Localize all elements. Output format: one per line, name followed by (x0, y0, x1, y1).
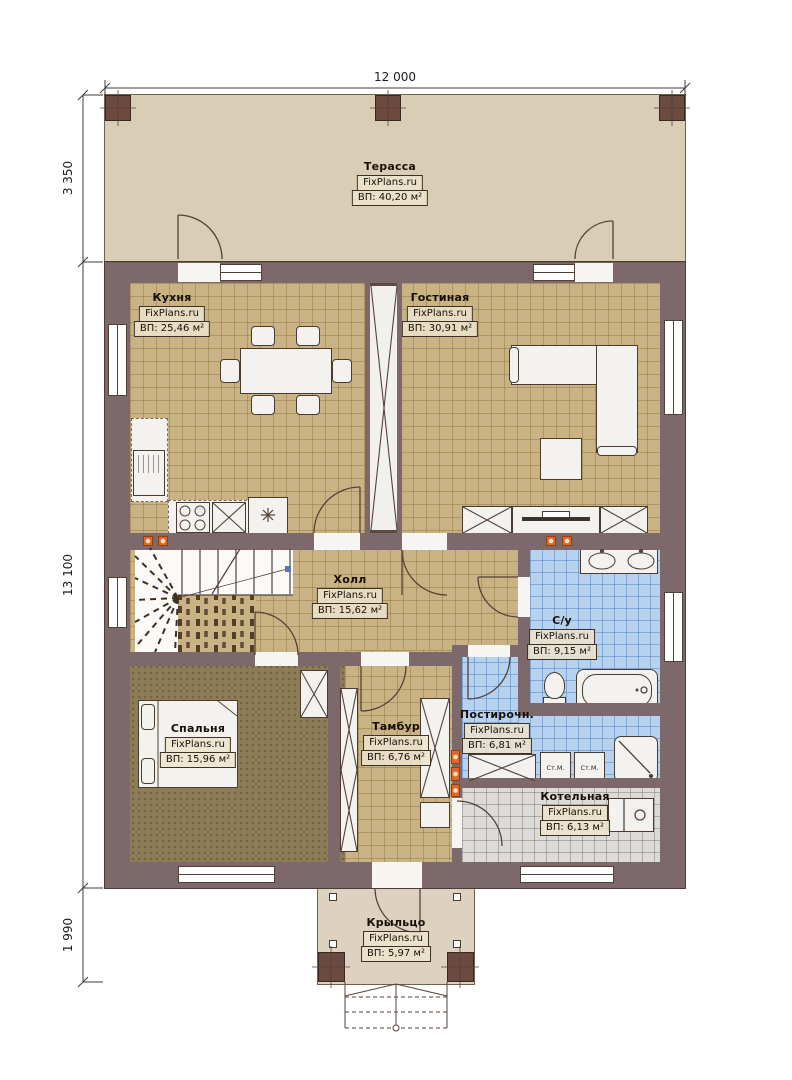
front-door-opening (372, 862, 422, 888)
brand-box: FixPlans.ru (542, 805, 608, 821)
boiler-door-opening (452, 798, 462, 848)
brand-box: FixPlans.ru (317, 588, 383, 604)
area-box: ВП: 6,76 м² (361, 750, 431, 766)
room-title: Крыльцо (367, 916, 426, 929)
dimension-house-depth: 13 100 (61, 554, 75, 596)
area-box: ВП: 25,46 м² (134, 321, 210, 337)
wall-vestibule-top (409, 652, 452, 666)
washer-label: Ст.М. (540, 764, 571, 772)
room-label-porch: Крыльцо FixPlans.ru ВП: 5,97 м² (361, 916, 431, 962)
dining-table (240, 348, 332, 394)
boiler-window (520, 866, 614, 883)
kitchen-island-unit (248, 497, 288, 534)
tv-cabinet-right (600, 506, 648, 534)
terrace-door-opening-right (575, 263, 613, 282)
wall-boiler-top (452, 778, 666, 788)
area-box: ВП: 15,62 м² (312, 603, 388, 619)
stair-direction-marker (285, 566, 291, 572)
pillow (141, 704, 155, 730)
bedroom-wardrobe (300, 670, 328, 718)
dining-chair (251, 395, 275, 415)
area-box: ВП: 15,96 м² (160, 752, 236, 768)
terrace-column (375, 95, 401, 121)
wall-bedroom-top (298, 652, 345, 666)
wall-mid (130, 533, 660, 550)
brand-box: FixPlans.ru (363, 931, 429, 947)
vent-marker (562, 536, 572, 546)
porch-post (329, 893, 337, 901)
washer-label: Ст.М. (574, 764, 605, 772)
staircase-winder (135, 548, 178, 652)
porch-steps (345, 997, 447, 1028)
bathroom-window (664, 592, 683, 662)
kitchen-window (108, 324, 127, 396)
room-label-hall: Холл FixPlans.ru ВП: 15,62 м² (312, 573, 388, 619)
porch-post (453, 893, 461, 901)
vestibule-shelf (420, 802, 450, 828)
room-label-bedroom: Спальня FixPlans.ru ВП: 15,96 м² (160, 722, 236, 768)
dining-chair (251, 326, 275, 346)
brand-box: FixPlans.ru (139, 306, 205, 322)
wall-bedroom-top (130, 652, 255, 666)
stove (176, 502, 210, 533)
bedroom-window (178, 866, 275, 883)
closet-strip (340, 688, 358, 852)
area-box: ВП: 6,13 м² (540, 820, 610, 836)
dining-chair (296, 395, 320, 415)
dimension-terrace-depth: 3 350 (61, 161, 75, 195)
vent-marker (143, 536, 153, 546)
floor-plan: Ст.М. Ст.М. (0, 0, 792, 1080)
kitchen-sink (212, 502, 246, 533)
porch-post (329, 940, 337, 948)
brand-box: FixPlans.ru (529, 629, 595, 645)
room-title: Холл (334, 573, 367, 586)
wall-bedroom-right (328, 666, 340, 862)
bathroom-door-opening (518, 577, 530, 617)
shower-tray (614, 736, 658, 782)
area-box: ВП: 30,91 м² (402, 321, 478, 337)
terrace-window-left (220, 264, 262, 281)
area-box: ВП: 6,81 м² (462, 738, 532, 754)
laundry-door-opening (468, 645, 510, 657)
dining-chair (332, 359, 352, 383)
porch-post (453, 940, 461, 948)
dining-chair (220, 359, 240, 383)
area-box: ВП: 9,15 м² (527, 644, 597, 660)
tv-console (542, 511, 570, 518)
dining-chair (296, 326, 320, 346)
room-label-living: Гостиная FixPlans.ru ВП: 30,91 м² (402, 291, 478, 337)
stair-window (108, 577, 127, 628)
vent-marker (546, 536, 556, 546)
pillow (141, 758, 155, 784)
boiler-unit (608, 798, 654, 832)
wall-vestibule-top (345, 652, 361, 666)
brand-box: FixPlans.ru (464, 723, 530, 739)
vanity (580, 548, 658, 574)
room-title: Терасса (364, 160, 416, 173)
sofa-armrest (509, 347, 519, 383)
brand-box: FixPlans.ru (363, 735, 429, 751)
porch-column (318, 952, 345, 982)
room-title: Спальня (171, 722, 225, 735)
vent-marker (158, 536, 168, 546)
wall-bath-bottom (518, 703, 666, 716)
room-label-vestibule: Тамбур FixPlans.ru ВП: 6,76 м² (361, 720, 431, 766)
brand-box: FixPlans.ru (407, 306, 473, 322)
brand-box: FixPlans.ru (357, 175, 423, 191)
porch-steps-frame (345, 982, 447, 1031)
room-title: С/у (552, 614, 572, 627)
room-title: Кухня (153, 291, 192, 304)
sofa-vertical (596, 345, 638, 453)
room-title: Постирочн. (460, 708, 534, 721)
room-title: Гостиная (411, 291, 470, 304)
vestibule-door-opening (361, 652, 409, 666)
vent-marker (451, 784, 460, 797)
room-label-terrace: Терасса FixPlans.ru ВП: 40,20 м² (352, 160, 428, 206)
wall-laundry-top (452, 645, 468, 657)
fridge (133, 450, 165, 496)
toilet-bowl (544, 672, 565, 699)
vent-marker (451, 767, 460, 781)
room-title: Котельная (540, 790, 609, 803)
room-label-kitchen: Кухня FixPlans.ru ВП: 25,46 м² (134, 291, 210, 337)
area-box: ВП: 5,97 м² (361, 946, 431, 962)
room-label-boiler: Котельная FixPlans.ru ВП: 6,13 м² (540, 790, 610, 836)
terrace-column (659, 95, 685, 121)
brand-box: FixPlans.ru (165, 737, 231, 753)
terrace-door-opening-left (178, 263, 220, 282)
tv-cabinet-left (462, 506, 512, 534)
bedroom-door-opening (255, 652, 298, 666)
coffee-table (540, 438, 582, 480)
living-window (664, 320, 683, 415)
living-door-opening (402, 533, 447, 550)
terrace-column (105, 95, 131, 121)
porch-column (447, 952, 474, 982)
vent-marker (451, 750, 460, 764)
dimension-porch-depth: 1 990 (61, 918, 75, 952)
area-box: ВП: 40,20 м² (352, 190, 428, 206)
room-label-bathroom: С/у FixPlans.ru ВП: 9,15 м² (527, 614, 597, 660)
staircase-under (178, 595, 256, 652)
wall-vestibule-right (452, 848, 462, 862)
dimension-width: 12 000 (374, 70, 416, 84)
sofa-armrest (597, 446, 637, 456)
chimney-shaft (370, 283, 397, 533)
kitchen-door-opening (314, 533, 360, 550)
room-label-laundry: Постирочн. FixPlans.ru ВП: 6,81 м² (460, 708, 534, 754)
room-title: Тамбур (372, 720, 420, 733)
terrace-window-right (533, 264, 575, 281)
